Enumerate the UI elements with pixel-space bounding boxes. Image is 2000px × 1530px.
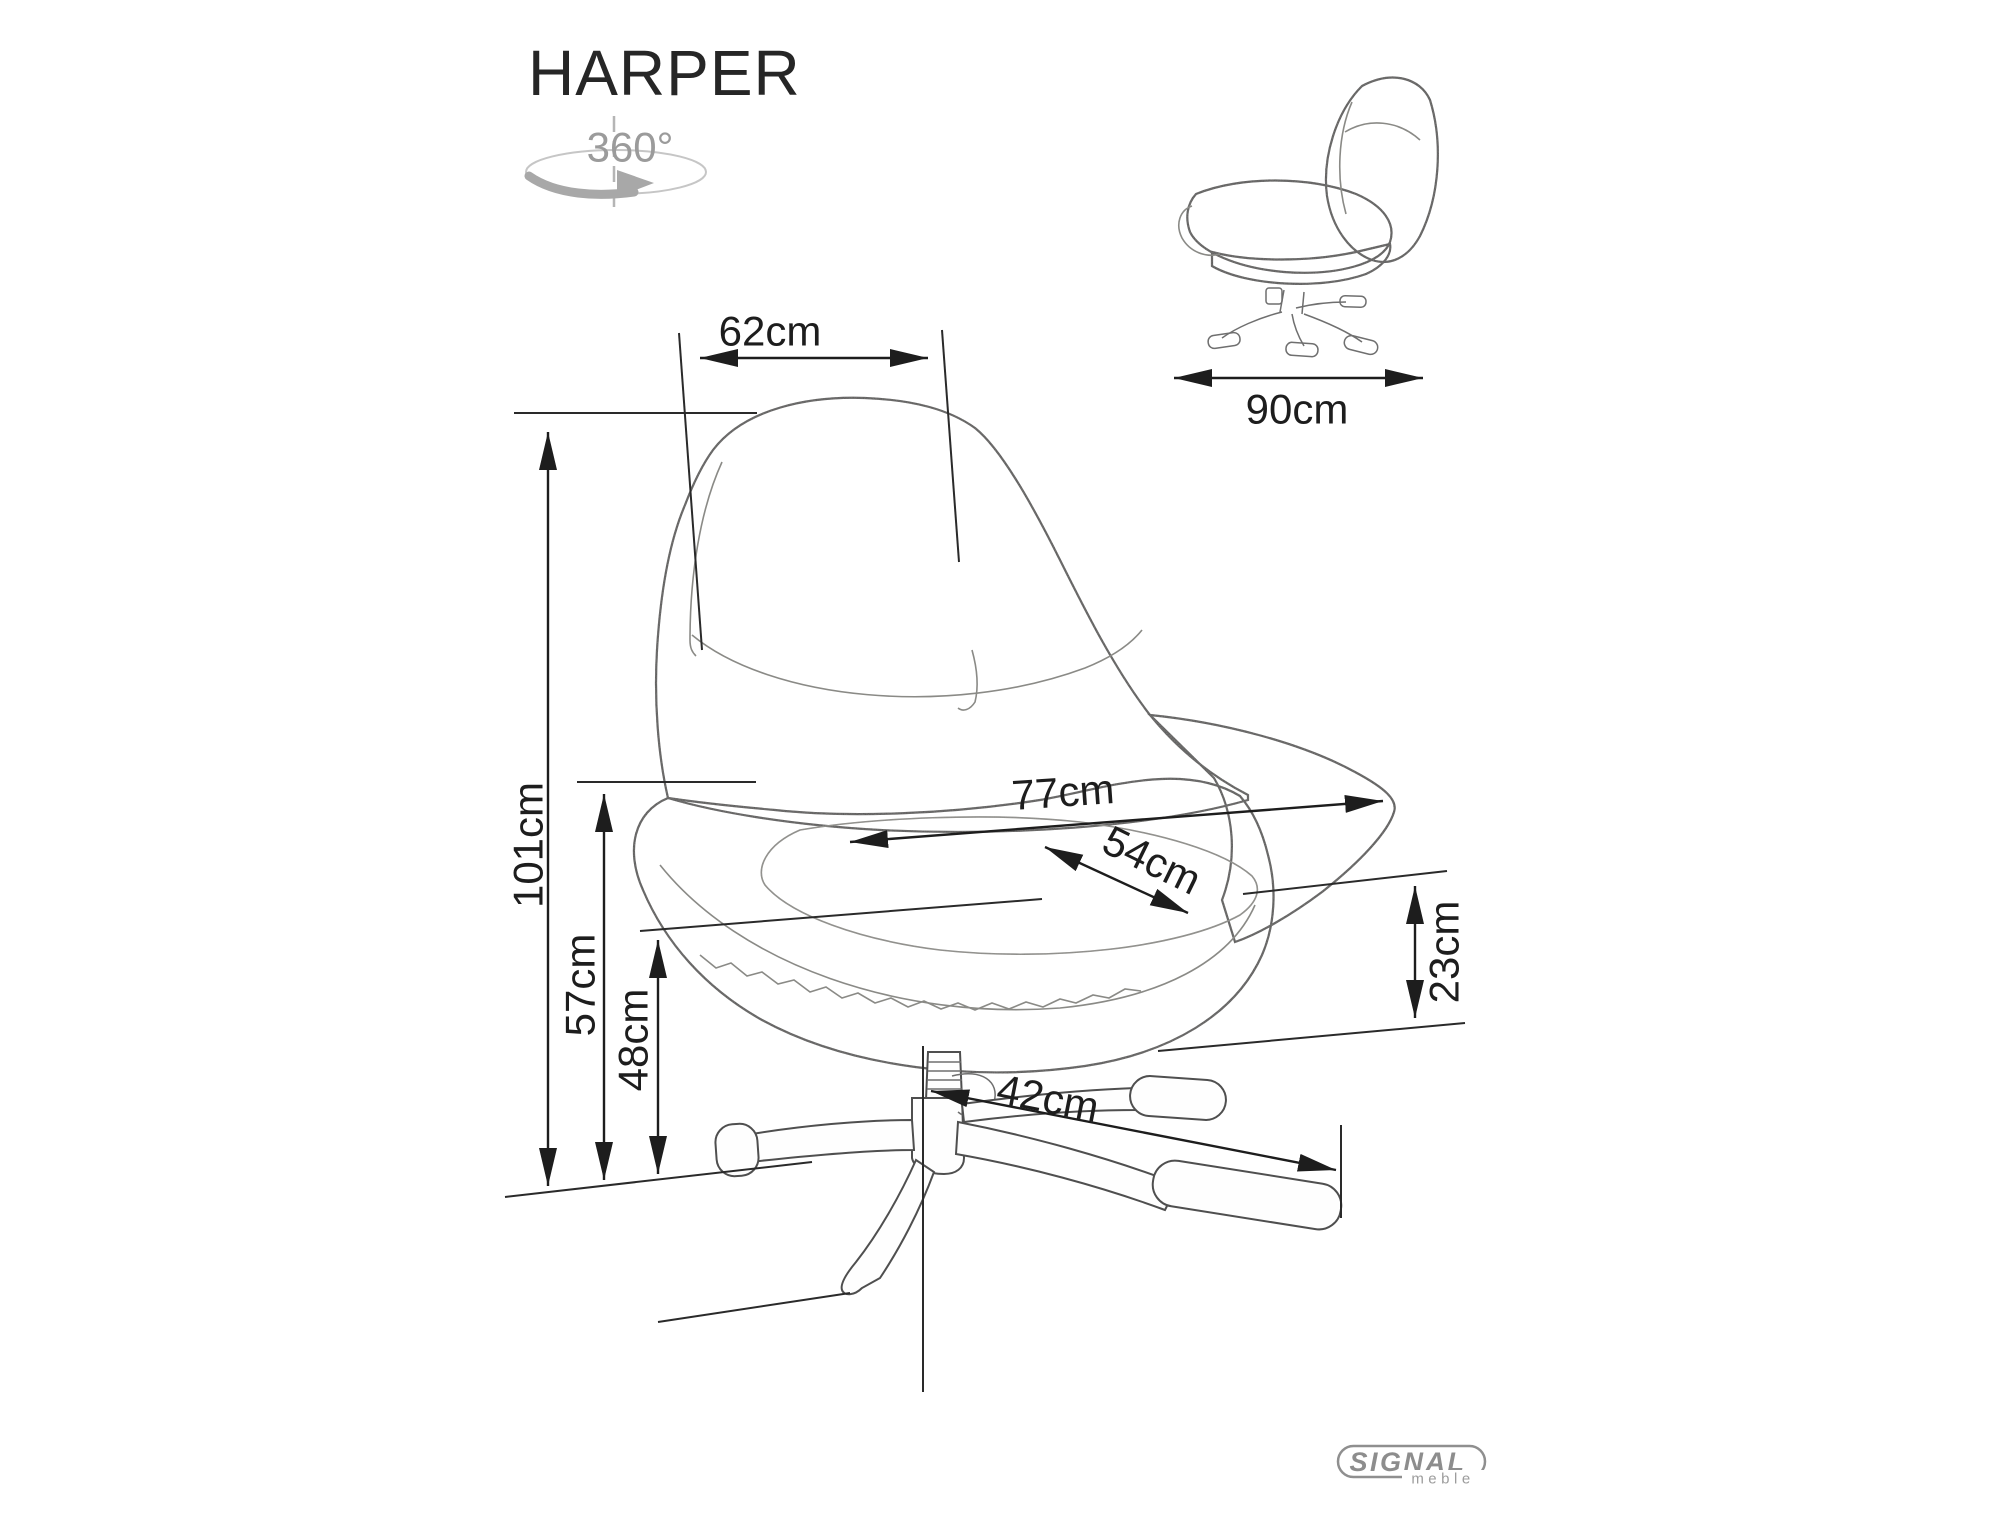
base-leg-front (842, 1160, 934, 1294)
chair-seat-shell (634, 779, 1274, 1073)
side-chair-leg (1304, 314, 1362, 342)
dim-label: 54cm (1096, 816, 1209, 903)
backrest-smile-seam (692, 630, 1142, 697)
side-chair-leg (1292, 314, 1304, 346)
rotation-icon-label: 360° (587, 124, 674, 171)
backrest-crease (958, 650, 977, 710)
dim-seat-width-54: 54cm (1045, 816, 1208, 913)
base-leg-right (956, 1122, 1178, 1210)
side-chair-foot (1343, 334, 1379, 356)
side-chair-seam (1340, 102, 1352, 214)
side-chair-armrest-seam (1179, 206, 1220, 255)
base-leg-left (750, 1120, 914, 1162)
side-chair-column-detail (1266, 288, 1282, 304)
dim-armrest-height-57: 57cm (557, 782, 757, 1180)
dim-label: 77cm (1010, 765, 1116, 819)
dim-label: 62cm (719, 308, 822, 355)
dim-label: 57cm (557, 934, 604, 1037)
dim-label: 101cm (505, 782, 552, 908)
zigzag-stitching (700, 955, 1141, 1010)
dim-label: 42cm (993, 1065, 1103, 1131)
side-chair-backrest (1326, 78, 1438, 262)
product-title: HARPER (528, 37, 801, 109)
dim-side-depth-90: 90cm (1174, 378, 1423, 433)
dim-label: 23cm (1421, 901, 1468, 1004)
dim-label: 48cm (610, 989, 657, 1092)
base-foot-right (1150, 1157, 1345, 1232)
dim-base-leg-reach-42: 42cm (658, 1046, 1341, 1392)
side-chair-column (1302, 292, 1304, 314)
dim-label: 90cm (1246, 386, 1349, 433)
side-chair-seam (1345, 123, 1420, 140)
harper-dimension-diagram: HARPER 360° 90cm (0, 0, 2000, 1530)
rotation-360-icon: 360° (526, 116, 706, 212)
base-foot-back (1129, 1075, 1228, 1122)
side-chair-foot (1207, 332, 1240, 349)
side-chair-leg (1222, 312, 1282, 338)
side-view-chair-drawing (1179, 78, 1438, 358)
side-chair-foot (1286, 342, 1319, 357)
logo-subtitle-text: meble (1411, 1471, 1474, 1488)
brand-logo: SIGNAL meble (1338, 1446, 1486, 1488)
dim-back-width-62: 62cm (679, 308, 959, 651)
